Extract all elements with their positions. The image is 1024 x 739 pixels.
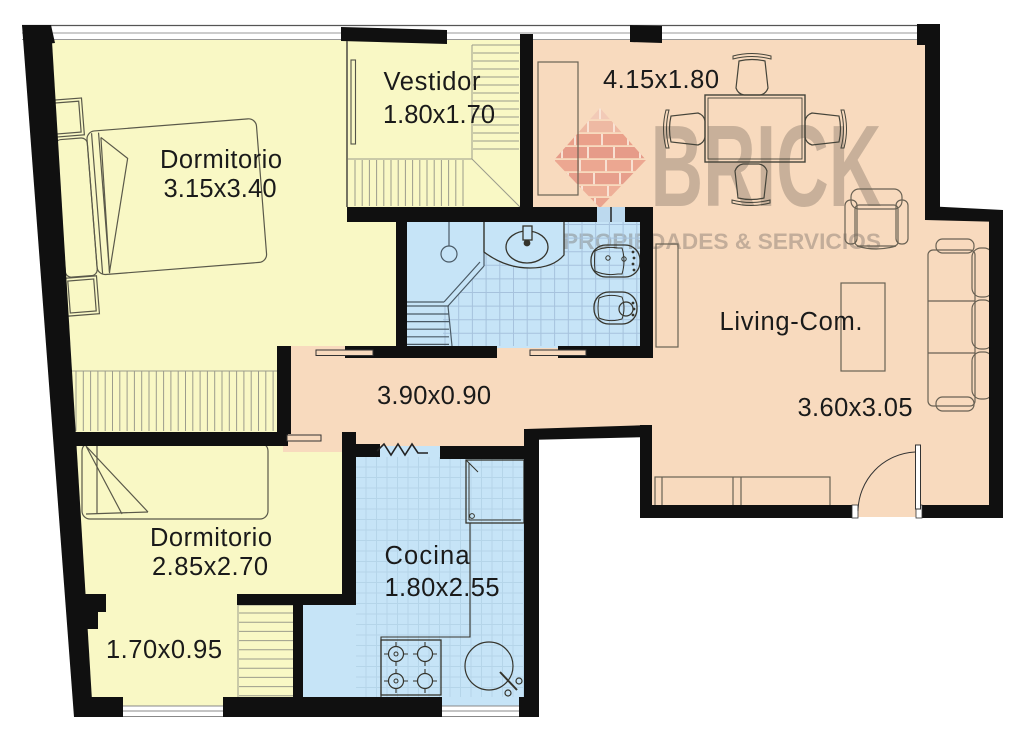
- svg-text:1.80x1.70: 1.80x1.70: [383, 101, 495, 129]
- svg-text:4.15x1.80: 4.15x1.80: [603, 66, 719, 94]
- svg-text:Cocina: Cocina: [385, 542, 471, 570]
- svg-text:Dormitorio: Dormitorio: [160, 146, 282, 174]
- svg-text:Vestidor: Vestidor: [384, 68, 482, 96]
- svg-text:1.80x2.55: 1.80x2.55: [385, 574, 500, 602]
- svg-text:3.60x3.05: 3.60x3.05: [798, 394, 913, 422]
- svg-text:3.15x3.40: 3.15x3.40: [164, 175, 277, 203]
- svg-text:PROPIEDADES & SERVICIOS: PROPIEDADES & SERVICIOS: [563, 229, 881, 254]
- svg-text:3.90x0.90: 3.90x0.90: [377, 382, 491, 410]
- svg-text:Dormitorio: Dormitorio: [150, 524, 272, 552]
- svg-text:Living-Com.: Living-Com.: [720, 308, 863, 336]
- svg-text:1.70x0.95: 1.70x0.95: [106, 636, 222, 664]
- svg-text:BRICK: BRICK: [651, 101, 882, 231]
- svg-text:2.85x2.70: 2.85x2.70: [152, 553, 268, 581]
